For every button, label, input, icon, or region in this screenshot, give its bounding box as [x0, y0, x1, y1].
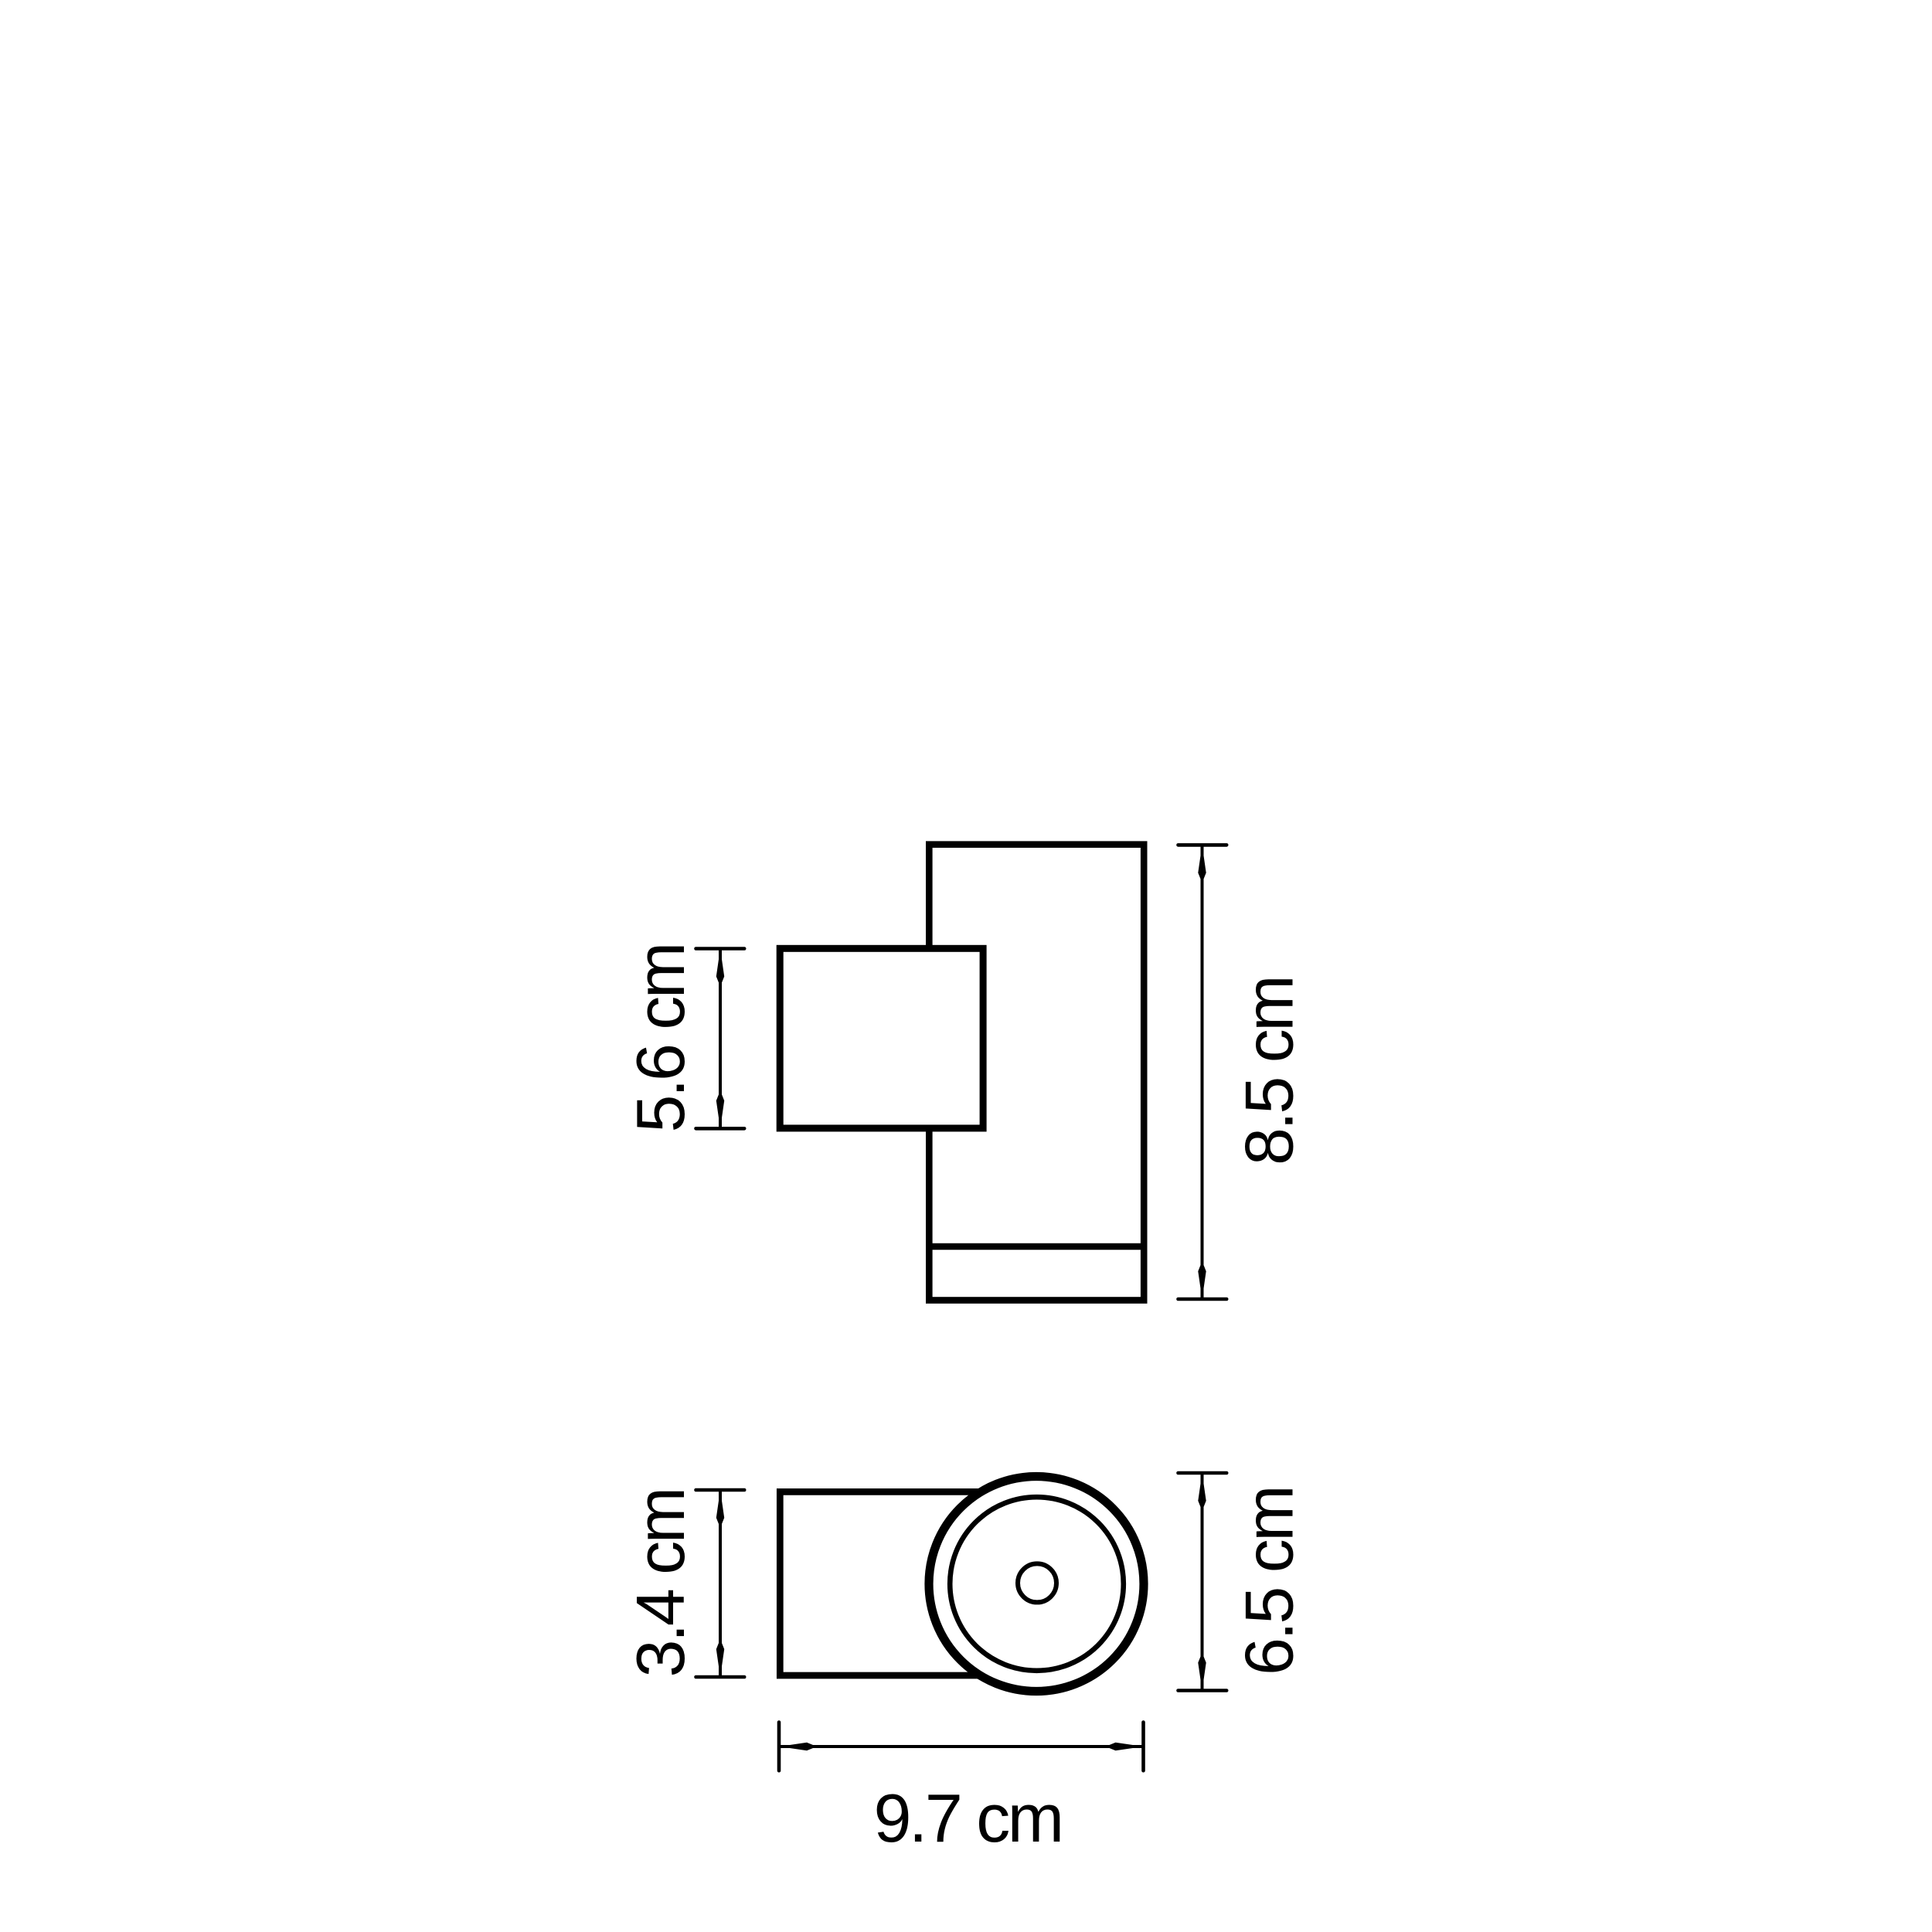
svg-text:9.7 cm: 9.7 cm — [873, 1780, 1061, 1856]
svg-text:5.6 cm: 5.6 cm — [622, 944, 699, 1132]
svg-text:6.5 cm: 6.5 cm — [1231, 1488, 1308, 1675]
svg-text:8.5 cm: 8.5 cm — [1231, 978, 1308, 1165]
svg-text:3.4 cm: 3.4 cm — [622, 1489, 699, 1677]
